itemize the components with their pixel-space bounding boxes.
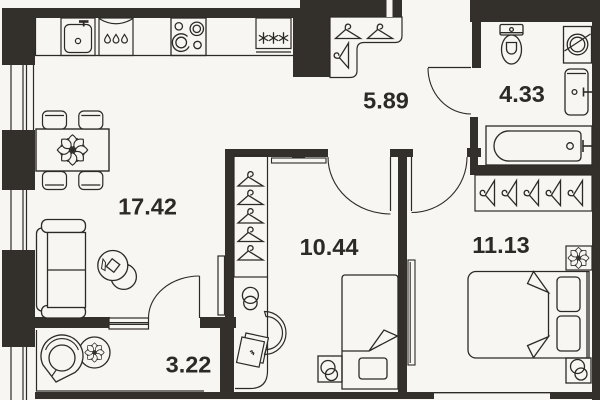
svg-text:5.89: 5.89 (363, 88, 409, 114)
svg-text:17.42: 17.42 (118, 194, 177, 220)
svg-text:3.22: 3.22 (166, 352, 212, 378)
svg-text:11.13: 11.13 (472, 232, 530, 258)
svg-text:4.33: 4.33 (499, 81, 545, 107)
svg-text:10.44: 10.44 (300, 234, 359, 260)
